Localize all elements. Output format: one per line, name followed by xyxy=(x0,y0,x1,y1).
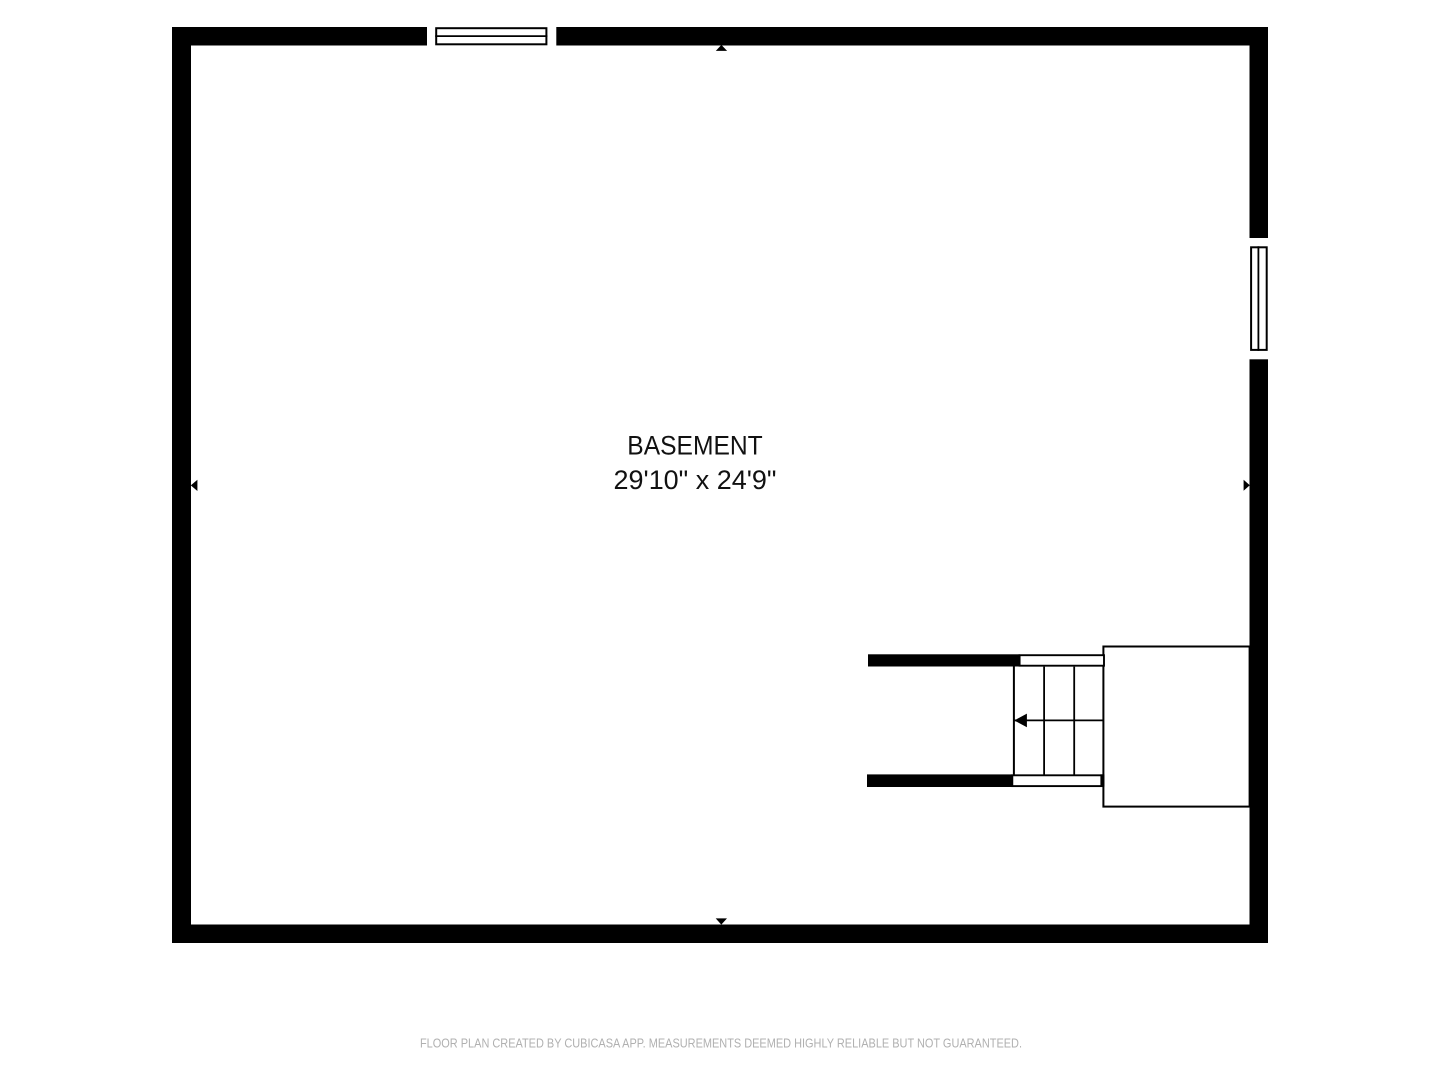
svg-text:BASEMENT: BASEMENT xyxy=(627,431,762,461)
svg-text:FLOOR PLAN CREATED BY CUBICASA: FLOOR PLAN CREATED BY CUBICASA APP. MEAS… xyxy=(420,1035,1022,1050)
svg-text:29'10" x 24'9": 29'10" x 24'9" xyxy=(614,465,777,495)
